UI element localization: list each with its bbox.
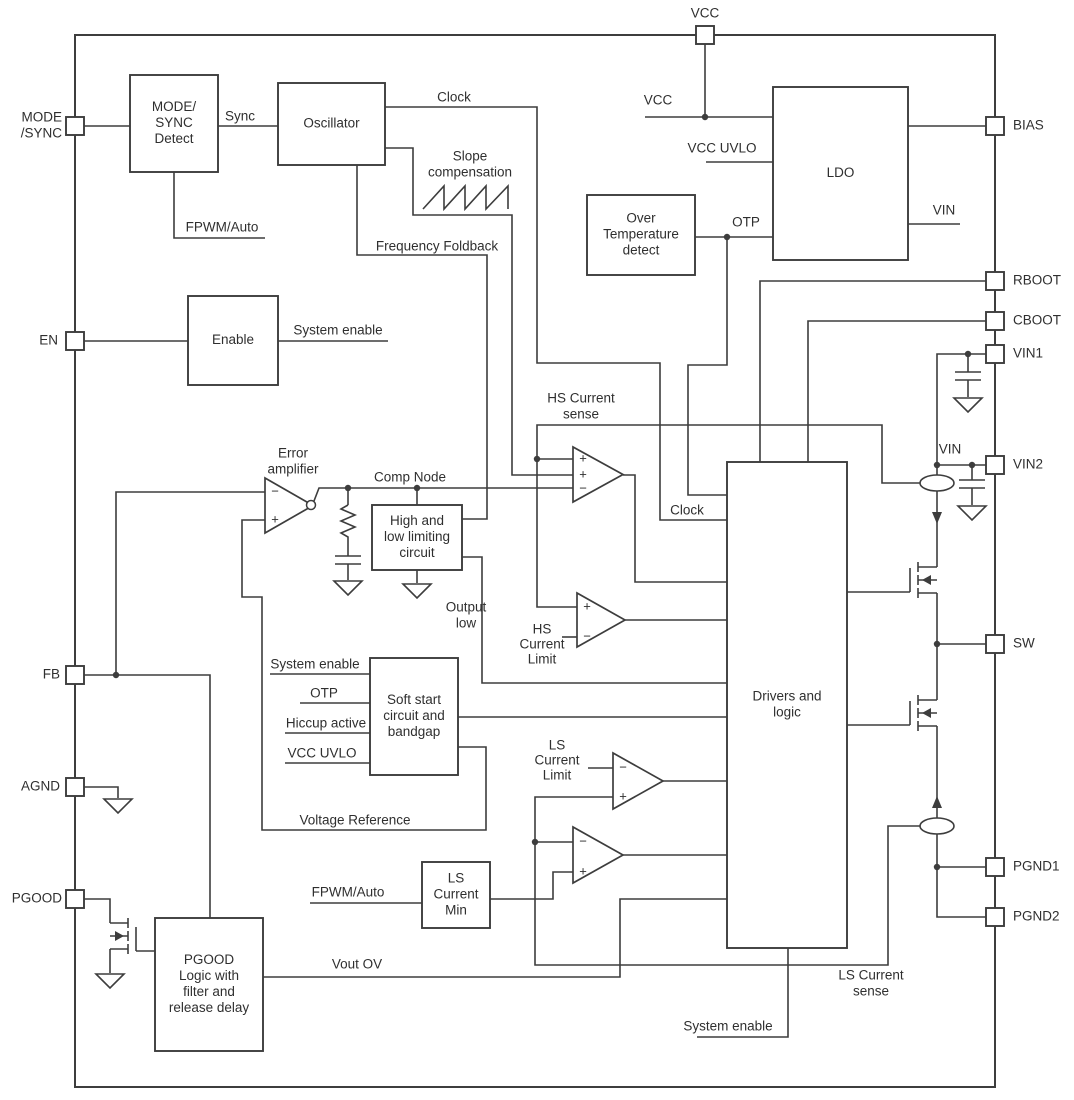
error-amplifier-label: Error bbox=[278, 446, 309, 461]
junction-dot-2 bbox=[965, 351, 971, 357]
pgood-logic-block-label: Logic with bbox=[179, 968, 239, 983]
wire-rboot bbox=[760, 281, 986, 462]
mode-sync-detect-block-label: MODE/ bbox=[152, 99, 197, 114]
over-temperature-detect-block-label: Temperature bbox=[603, 227, 679, 242]
agnd-ground-icon bbox=[104, 799, 132, 813]
pin-vin1-label: VIN1 bbox=[1013, 346, 1043, 361]
otp-label-ldo: OTP bbox=[732, 215, 760, 230]
pin-cboot bbox=[986, 312, 1004, 330]
hs-current-flow-arrow-icon bbox=[932, 512, 942, 524]
ls-current-flow-arrow-icon bbox=[932, 796, 942, 808]
pin-rboot bbox=[986, 272, 1004, 290]
pgood-logic-block-label: filter and bbox=[183, 984, 235, 999]
vin-label-node: VIN bbox=[939, 442, 962, 457]
pin-vcc bbox=[696, 26, 714, 44]
vin1-cap-ground-icon bbox=[954, 398, 982, 412]
pin-pgnd2 bbox=[986, 908, 1004, 926]
drivers-logic-block-label: Drivers and bbox=[752, 689, 821, 704]
ls-current-limit-comparator-sign-1: + bbox=[619, 788, 627, 803]
pin-pgood-label: PGOOD bbox=[12, 891, 63, 906]
wire-pgnd2 bbox=[937, 867, 986, 917]
hs-current-sense-coil-icon bbox=[920, 475, 954, 491]
clock-label-top: Clock bbox=[437, 90, 471, 105]
system-enable-label-bottom: System enable bbox=[683, 1019, 772, 1034]
pin-pgood bbox=[66, 890, 84, 908]
voltage-reference-label: Voltage Reference bbox=[299, 813, 410, 828]
wire-pgood-in bbox=[84, 899, 110, 923]
pin-rboot-label: RBOOT bbox=[1013, 273, 1061, 288]
fpwm-auto-label-top: FPWM/Auto bbox=[186, 220, 259, 235]
ls-current-sense-coil-icon bbox=[920, 818, 954, 834]
junction-dot-7 bbox=[414, 485, 420, 491]
wire-frequency-foldback bbox=[357, 165, 487, 519]
hs-current-sense-label: sense bbox=[563, 407, 599, 422]
clock-label-drivers: Clock bbox=[670, 503, 704, 518]
error-amplifier-sign-1: + bbox=[271, 511, 279, 526]
mode-sync-detect-block-label: SYNC bbox=[155, 115, 193, 130]
pin-agnd bbox=[66, 778, 84, 796]
hs-current-limit-comparator-sign-1: − bbox=[583, 628, 591, 643]
vcc-uvlo-label-ldo: VCC UVLO bbox=[687, 141, 756, 156]
pin-bias bbox=[986, 117, 1004, 135]
ls-zero-cross-comparator-sign-0: − bbox=[579, 833, 587, 848]
pgood-fet-ground-icon bbox=[96, 974, 124, 988]
junction-dot-8 bbox=[113, 672, 119, 678]
system-enable-label-ss: System enable bbox=[270, 657, 359, 672]
soft-start-block-label: bandgap bbox=[388, 724, 441, 739]
over-temperature-detect-block-label: Over bbox=[626, 211, 656, 226]
hs-current-limit-label: Limit bbox=[528, 652, 557, 667]
output-low-label: Output bbox=[446, 600, 487, 615]
hs-current-limit-label: HS bbox=[533, 622, 552, 637]
ls-current-sense-label: LS Current bbox=[838, 968, 904, 983]
pin-vin2-label: VIN2 bbox=[1013, 457, 1043, 472]
hs-current-limit-label: Current bbox=[519, 637, 564, 652]
ls-current-min-block-label: LS bbox=[448, 871, 465, 886]
mode-sync-detect-block-label: Detect bbox=[154, 131, 193, 146]
junction-dot-3 bbox=[934, 462, 940, 468]
junction-dot-10 bbox=[934, 641, 940, 647]
junction-dot-11 bbox=[934, 864, 940, 870]
system-enable-label-en: System enable bbox=[293, 323, 382, 338]
slope-compensation-label: Slope bbox=[453, 149, 488, 164]
junction-dot-9 bbox=[532, 839, 538, 845]
hs-current-sense-label: HS Current bbox=[547, 391, 615, 406]
pin-agnd-label: AGND bbox=[21, 779, 60, 794]
high-low-limiting-block-label: circuit bbox=[399, 545, 435, 560]
junction-dot-0 bbox=[702, 114, 708, 120]
ls-fet-body-arrow-icon bbox=[922, 708, 931, 718]
ls-current-limit-comparator-sign-0: − bbox=[619, 759, 627, 774]
wire-fb bbox=[84, 675, 210, 918]
pgood-fet-body-arrow-icon bbox=[115, 931, 124, 941]
pwm-comparator-sign-1: + bbox=[579, 466, 587, 481]
ls-current-limit-label: LS bbox=[549, 738, 566, 753]
wire-sawtooth bbox=[423, 186, 508, 209]
over-temperature-detect-block-label: detect bbox=[623, 243, 660, 258]
diagram-svg: MODE/SYNCDetectOscillatorEnableOverTempe… bbox=[0, 0, 1074, 1100]
pin-pgnd2-label: PGND2 bbox=[1013, 909, 1060, 924]
ls-current-limit-label: Limit bbox=[543, 768, 572, 783]
pin-en bbox=[66, 332, 84, 350]
vcc-label-ldo: VCC bbox=[644, 93, 673, 108]
ls-current-limit-label: Current bbox=[534, 753, 579, 768]
output-low-label: low bbox=[456, 616, 477, 631]
pin-fb-label: FB bbox=[43, 667, 60, 682]
high-low-limiting-block-label: low limiting bbox=[384, 529, 450, 544]
wire-comp-resistor bbox=[341, 505, 355, 540]
soft-start-block-label: Soft start bbox=[387, 692, 441, 707]
pin-sw-label: SW bbox=[1013, 636, 1035, 651]
highlow-ground-icon bbox=[403, 584, 431, 598]
oscillator-block-label: Oscillator bbox=[303, 116, 360, 131]
soft-start-block-label: circuit and bbox=[383, 708, 445, 723]
pwm-comparator-sign-2: − bbox=[579, 480, 587, 495]
enable-block-label: Enable bbox=[212, 332, 254, 347]
otp-label-ss: OTP bbox=[310, 686, 338, 701]
wire-lsmin-out bbox=[490, 872, 573, 899]
pin-vcc-label: VCC bbox=[691, 6, 720, 21]
pin-fb bbox=[66, 666, 84, 684]
junction-dot-1 bbox=[724, 234, 730, 240]
pgood-logic-block-label: release delay bbox=[169, 1000, 250, 1015]
comp-node-label: Comp Node bbox=[374, 470, 446, 485]
junction-dot-5 bbox=[534, 456, 540, 462]
hiccup-active-label: Hiccup active bbox=[286, 716, 366, 731]
pin-pgnd1 bbox=[986, 858, 1004, 876]
ls-current-sense-label: sense bbox=[853, 984, 889, 999]
vout-ov-label: Vout OV bbox=[332, 957, 382, 972]
junction-dot-4 bbox=[969, 462, 975, 468]
comp-cap-ground-icon bbox=[334, 581, 362, 595]
pin-vin2 bbox=[986, 456, 1004, 474]
pin-sw bbox=[986, 635, 1004, 653]
error-amplifier-bubble-icon bbox=[307, 501, 316, 510]
ls-current-min-block-label: Min bbox=[445, 903, 467, 918]
pin-mode-sync-label: /SYNC bbox=[21, 126, 63, 141]
error-amplifier-sign-0: − bbox=[271, 483, 279, 498]
frequency-foldback-label: Frequency Foldback bbox=[376, 239, 499, 254]
vin2-cap-ground-icon bbox=[958, 506, 986, 520]
hs-current-limit-comparator-sign-0: + bbox=[583, 598, 591, 613]
junction-dot-6 bbox=[345, 485, 351, 491]
wire-pwm-out bbox=[623, 475, 727, 582]
vcc-uvlo-label-ss: VCC UVLO bbox=[287, 746, 356, 761]
drivers-logic-block-label: logic bbox=[773, 705, 801, 720]
pin-pgnd1-label: PGND1 bbox=[1013, 859, 1060, 874]
ls-current-min-block-label: Current bbox=[433, 887, 478, 902]
pin-cboot-label: CBOOT bbox=[1013, 313, 1061, 328]
wire-agnd bbox=[84, 787, 118, 798]
sync-label: Sync bbox=[225, 109, 255, 124]
block-diagram-figure: MODE/SYNCDetectOscillatorEnableOverTempe… bbox=[0, 0, 1074, 1100]
fpwm-auto-label-lsmin: FPWM/Auto bbox=[312, 885, 385, 900]
pin-vin1 bbox=[986, 345, 1004, 363]
ls-zero-cross-comparator-sign-1: + bbox=[579, 863, 587, 878]
pgood-logic-block-label: PGOOD bbox=[184, 952, 235, 967]
wire-error-amp-out bbox=[314, 488, 573, 501]
hs-fet-body-arrow-icon bbox=[922, 575, 931, 585]
slope-compensation-label: compensation bbox=[428, 165, 512, 180]
pin-en-label: EN bbox=[39, 333, 58, 348]
ldo-block-label: LDO bbox=[827, 165, 855, 180]
pwm-comparator-sign-0: + bbox=[579, 450, 587, 465]
pin-mode-sync-label: MODE bbox=[22, 110, 63, 125]
high-low-limiting-block-label: High and bbox=[390, 513, 444, 528]
pin-bias-label: BIAS bbox=[1013, 118, 1044, 133]
pin-mode-sync bbox=[66, 117, 84, 135]
vin-label-ldo: VIN bbox=[933, 203, 956, 218]
wire-hs-sense-branch bbox=[537, 459, 577, 607]
error-amplifier-label: amplifier bbox=[267, 462, 319, 477]
wire-slope-comp bbox=[385, 148, 573, 475]
